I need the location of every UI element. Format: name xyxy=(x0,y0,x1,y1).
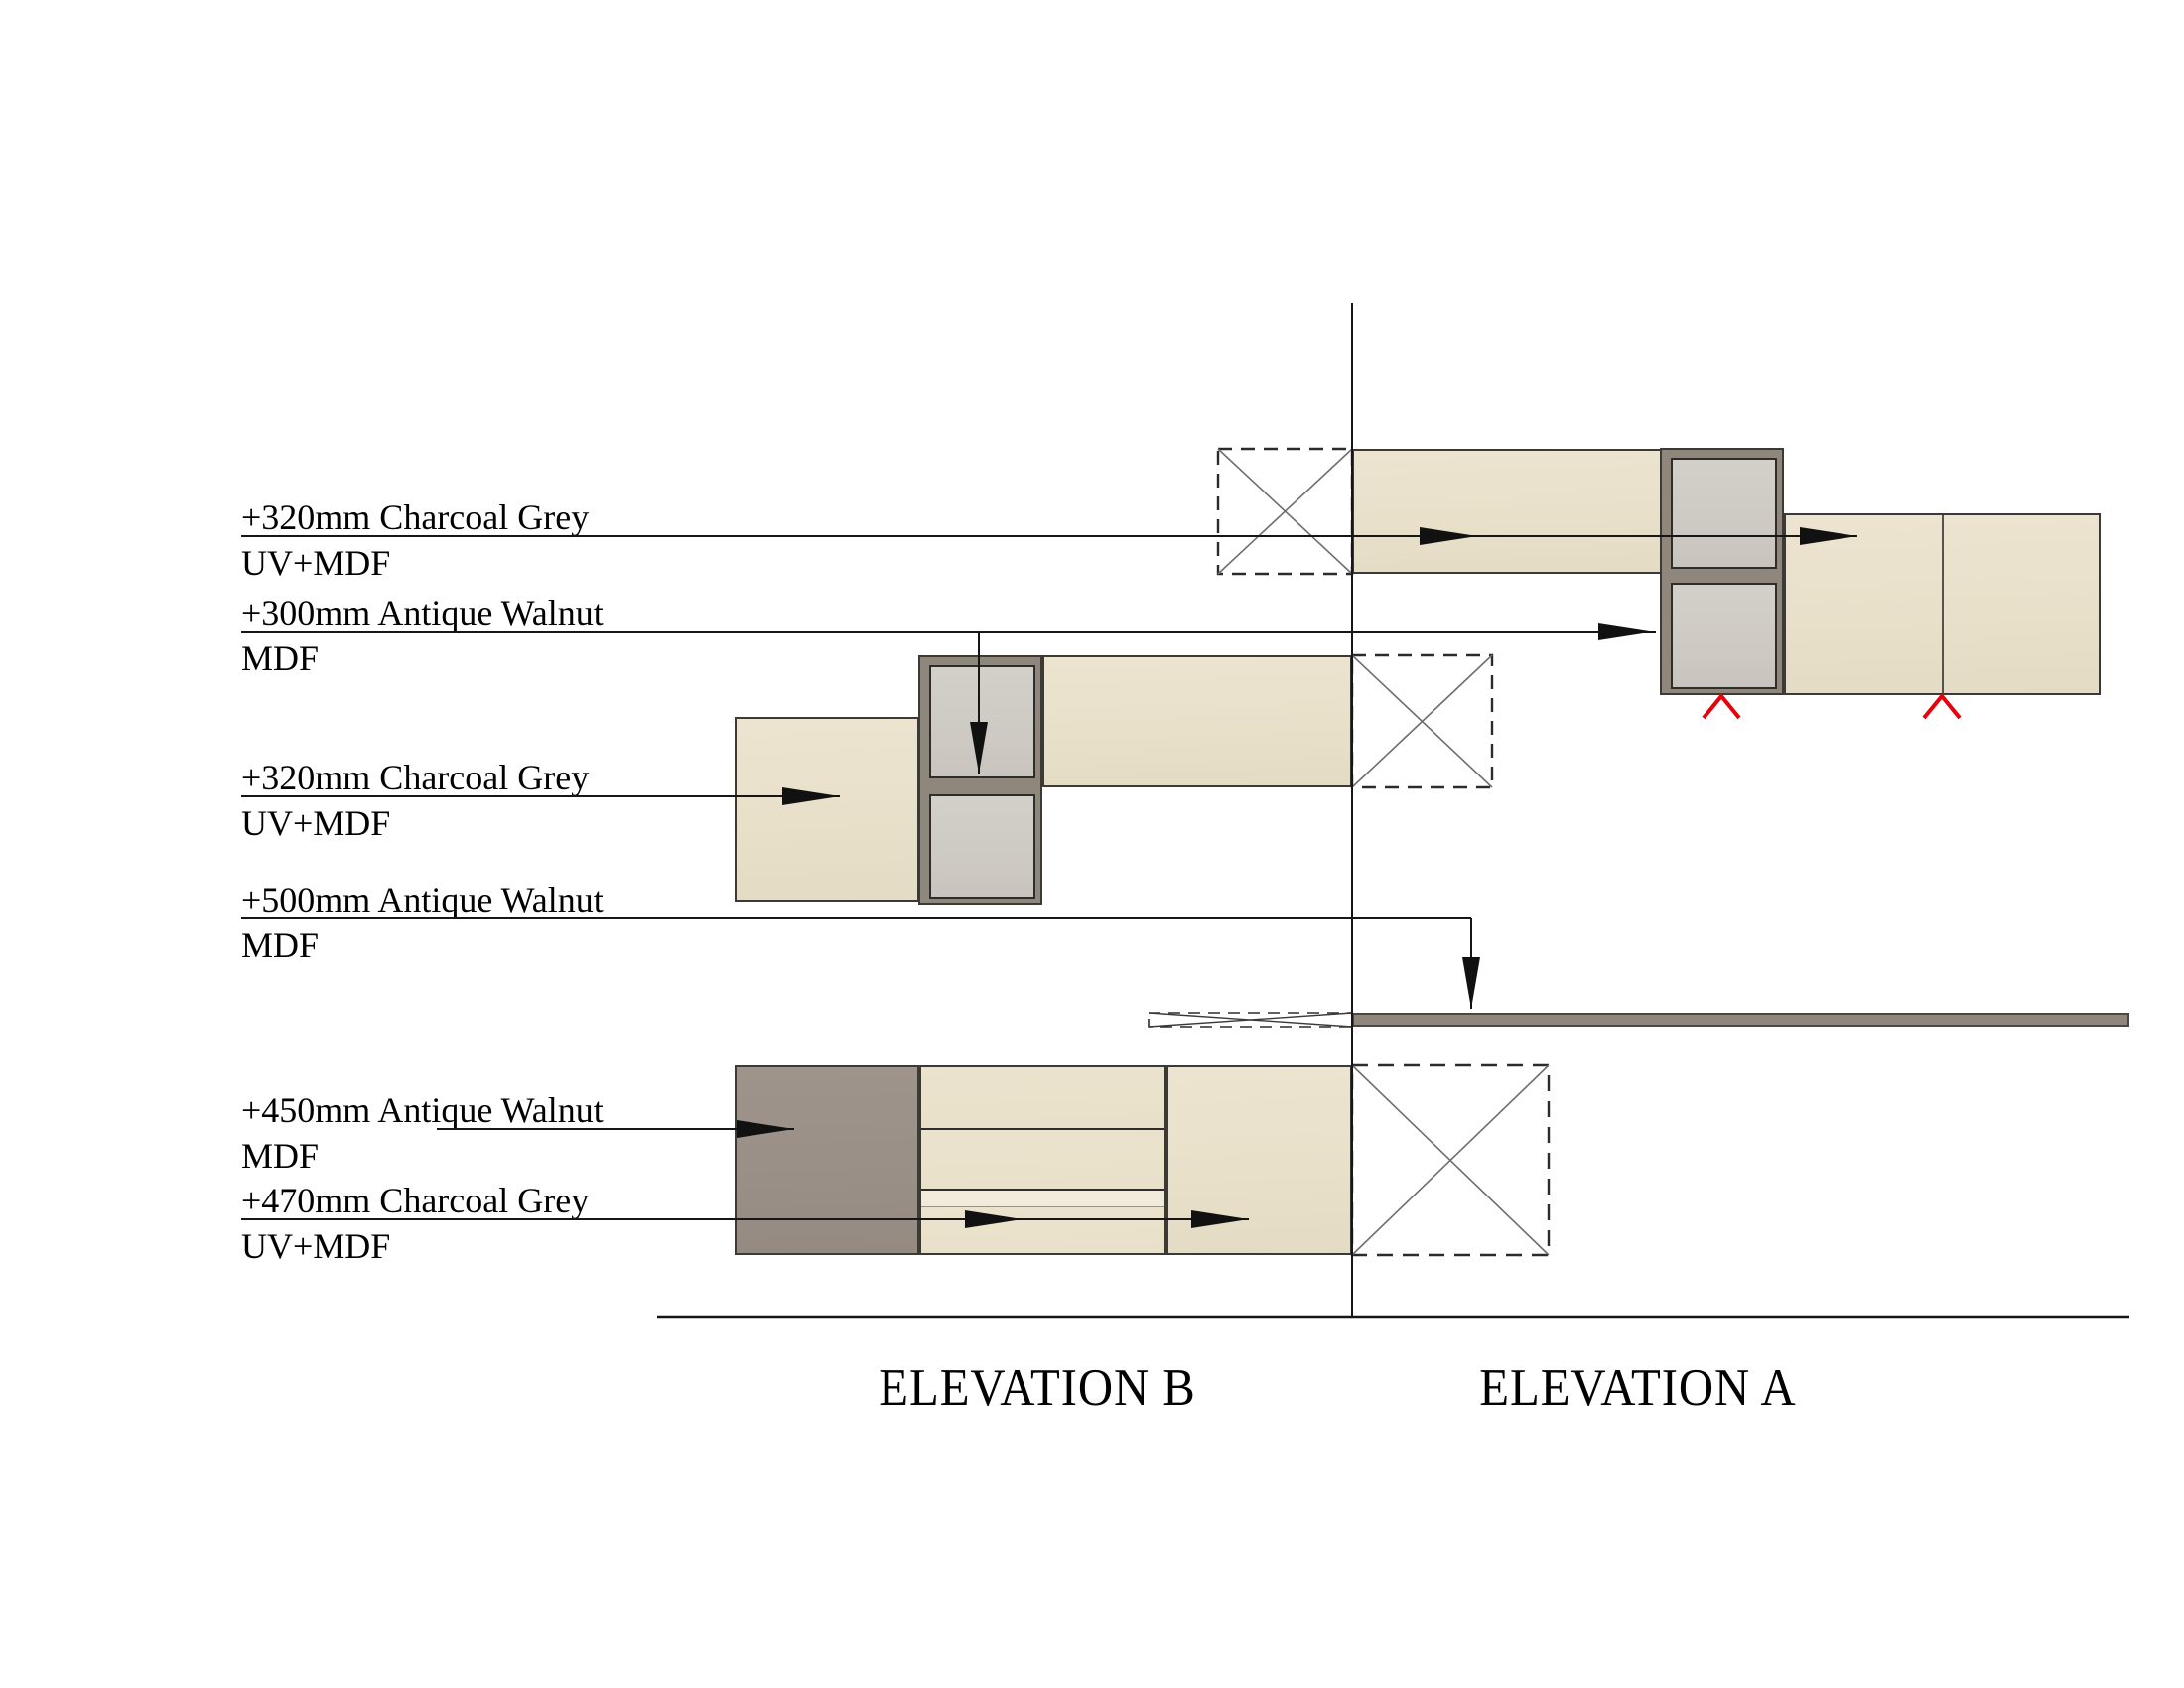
void-x-line xyxy=(1218,449,1352,574)
title-elevation-a-text: ELEVATION A xyxy=(1479,1362,1796,1415)
side-panel-b-left xyxy=(735,717,919,902)
tall-cabinet-b xyxy=(918,655,1042,905)
material-label-4-line1: +500mm Antique Walnut xyxy=(241,881,604,918)
material-label-2-line2: MDF xyxy=(241,639,604,677)
material-label-4-line2: MDF xyxy=(241,926,604,964)
void-x-line xyxy=(1218,449,1352,574)
panel-seam-line xyxy=(1942,515,1944,693)
arrowhead-right xyxy=(1598,623,1656,640)
top-panel-b xyxy=(1042,655,1352,787)
shelf-void-bowtie xyxy=(1149,1013,1352,1027)
arrowhead-down xyxy=(1462,957,1480,1009)
cabinet-b-door-bottom xyxy=(929,794,1035,899)
wall-cabinet-a xyxy=(1660,448,1784,695)
wall-panel-a-right xyxy=(1784,513,2101,695)
red-hinge-marker-1 xyxy=(1704,696,1739,718)
material-label-3: +320mm Charcoal Grey UV+MDF xyxy=(241,759,589,842)
void-x-line xyxy=(1352,1065,1549,1255)
cabinet-a-door-bottom xyxy=(1671,583,1777,689)
material-label-3-line1: +320mm Charcoal Grey xyxy=(241,759,589,796)
linework-overlay xyxy=(0,0,2184,1688)
drawer-stack xyxy=(919,1065,1166,1255)
material-label-5: +450mm Antique Walnut MDF xyxy=(241,1091,604,1175)
title-elevation-b-text: ELEVATION B xyxy=(879,1362,1195,1415)
red-hinge-marker-2 xyxy=(1924,696,1960,718)
material-label-1: +320mm Charcoal Grey UV+MDF xyxy=(241,498,589,582)
void-box-middle-b xyxy=(1352,655,1492,787)
material-label-4: +500mm Antique Walnut MDF xyxy=(241,881,604,964)
material-label-2-line1: +300mm Antique Walnut xyxy=(241,594,604,632)
material-label-1-line2: UV+MDF xyxy=(241,544,589,582)
void-box-bottom xyxy=(1352,1065,1549,1255)
title-elevation-b: ELEVATION B xyxy=(865,1362,1209,1415)
cabinet-b-door-top xyxy=(929,665,1035,778)
drawer-front-4 xyxy=(921,1206,1164,1253)
material-label-3-line2: UV+MDF xyxy=(241,804,589,842)
floating-shelf xyxy=(1352,1013,2129,1027)
base-door-panel-b xyxy=(1166,1065,1352,1255)
drawer-front-3 xyxy=(921,1189,1164,1206)
void-x-line xyxy=(1352,655,1492,787)
walnut-gable-panel xyxy=(735,1065,919,1255)
void-box-top-a xyxy=(1218,449,1352,574)
material-label-2: +300mm Antique Walnut MDF xyxy=(241,594,604,677)
material-label-5-line2: MDF xyxy=(241,1137,604,1175)
title-elevation-a: ELEVATION A xyxy=(1465,1362,1810,1415)
drawer-front-2 xyxy=(921,1128,1164,1189)
material-label-1-line1: +320mm Charcoal Grey xyxy=(241,498,589,536)
drawer-front-1 xyxy=(921,1067,1164,1128)
material-label-5-line1: +450mm Antique Walnut xyxy=(241,1091,604,1129)
wall-panel-a-left xyxy=(1352,449,1664,574)
void-x-line xyxy=(1352,1065,1549,1255)
material-label-6: +470mm Charcoal Grey UV+MDF xyxy=(241,1182,589,1265)
material-label-6-line1: +470mm Charcoal Grey xyxy=(241,1182,589,1219)
material-label-6-line2: UV+MDF xyxy=(241,1227,589,1265)
void-x-line xyxy=(1352,655,1492,787)
cabinet-a-door-top xyxy=(1671,458,1777,569)
elevation-drawing-canvas: +320mm Charcoal Grey UV+MDF +300mm Antiq… xyxy=(0,0,2184,1688)
